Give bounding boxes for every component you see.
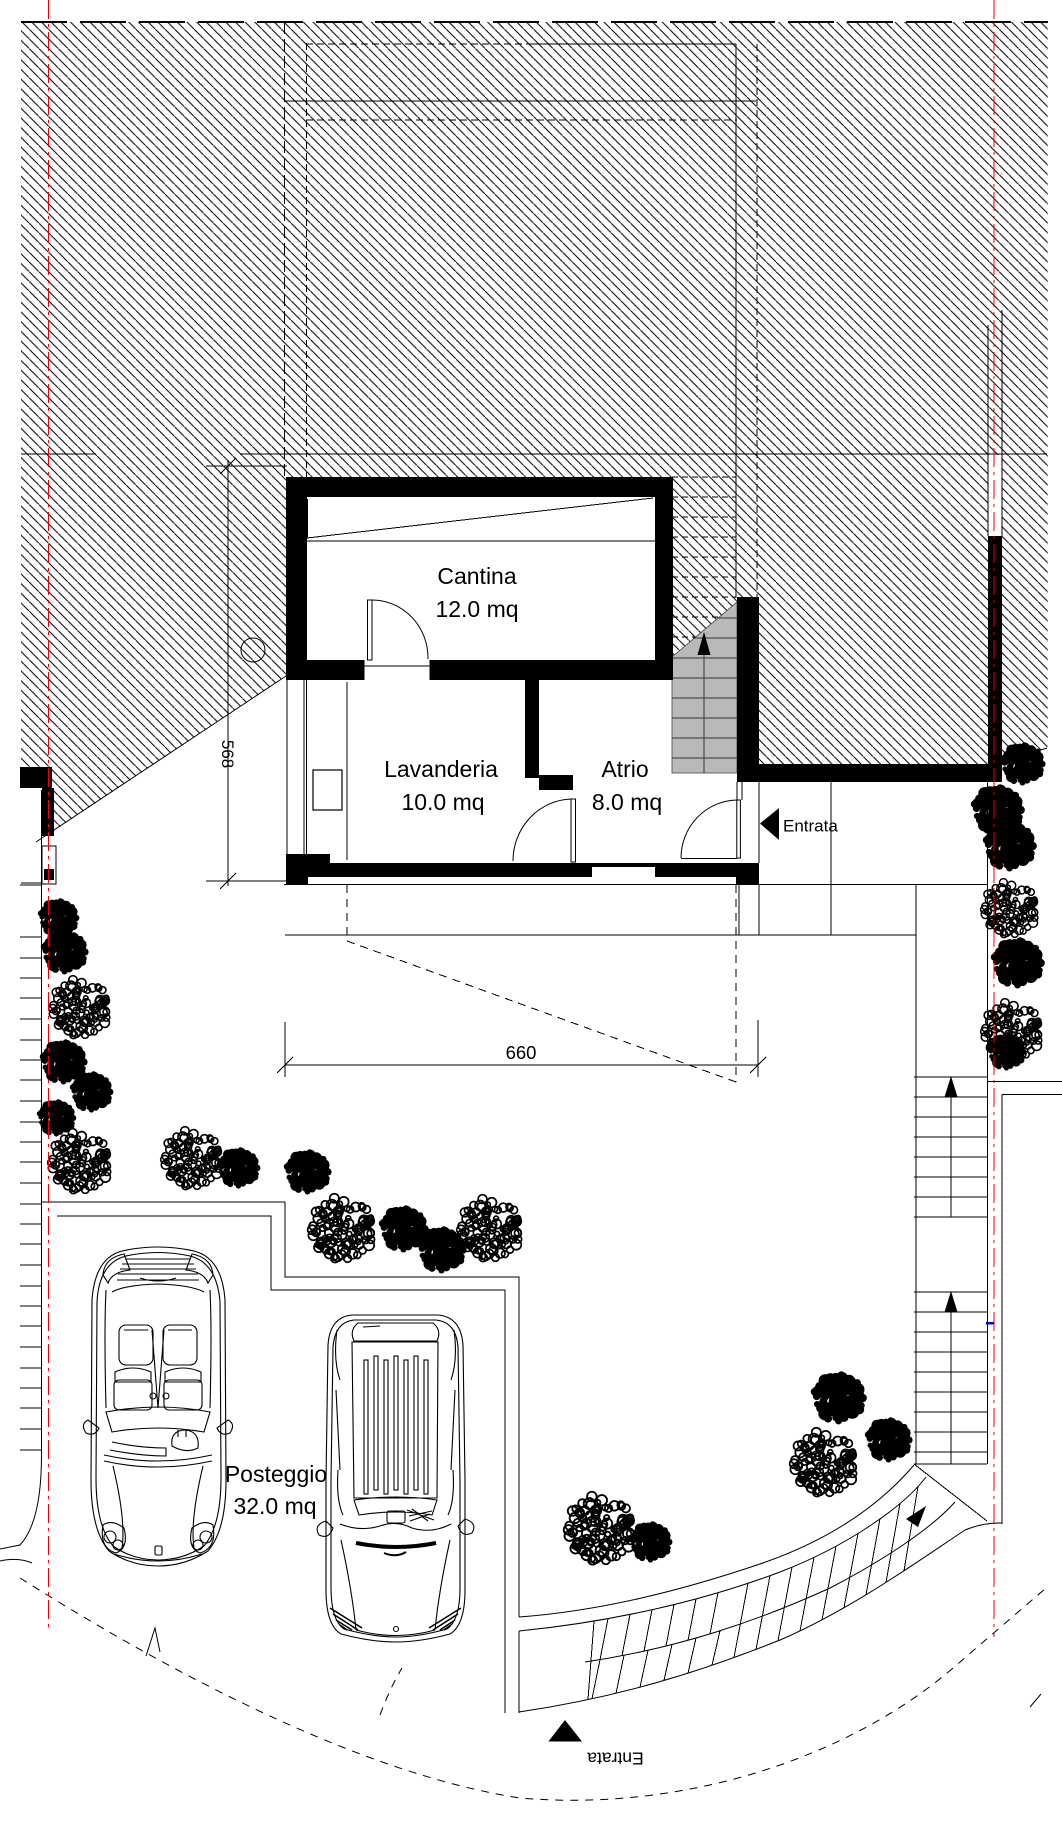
svg-text:8.0 mq: 8.0 mq [592, 789, 662, 815]
svg-text:12.0 mq: 12.0 mq [435, 596, 518, 622]
svg-text:568: 568 [218, 740, 237, 768]
svg-text:Cantina: Cantina [437, 563, 516, 589]
svg-text:32.0 mq: 32.0 mq [233, 1493, 316, 1519]
svg-text:Entrata: Entrata [783, 817, 838, 836]
svg-text:Posteggio: Posteggio [225, 1461, 327, 1487]
svg-text:660: 660 [506, 1042, 537, 1063]
svg-text:Entrata: Entrata [587, 1749, 644, 1769]
svg-text:10.0 mq: 10.0 mq [401, 789, 484, 815]
svg-text:Atrio: Atrio [601, 756, 648, 782]
svg-text:Lavanderia: Lavanderia [384, 756, 498, 782]
